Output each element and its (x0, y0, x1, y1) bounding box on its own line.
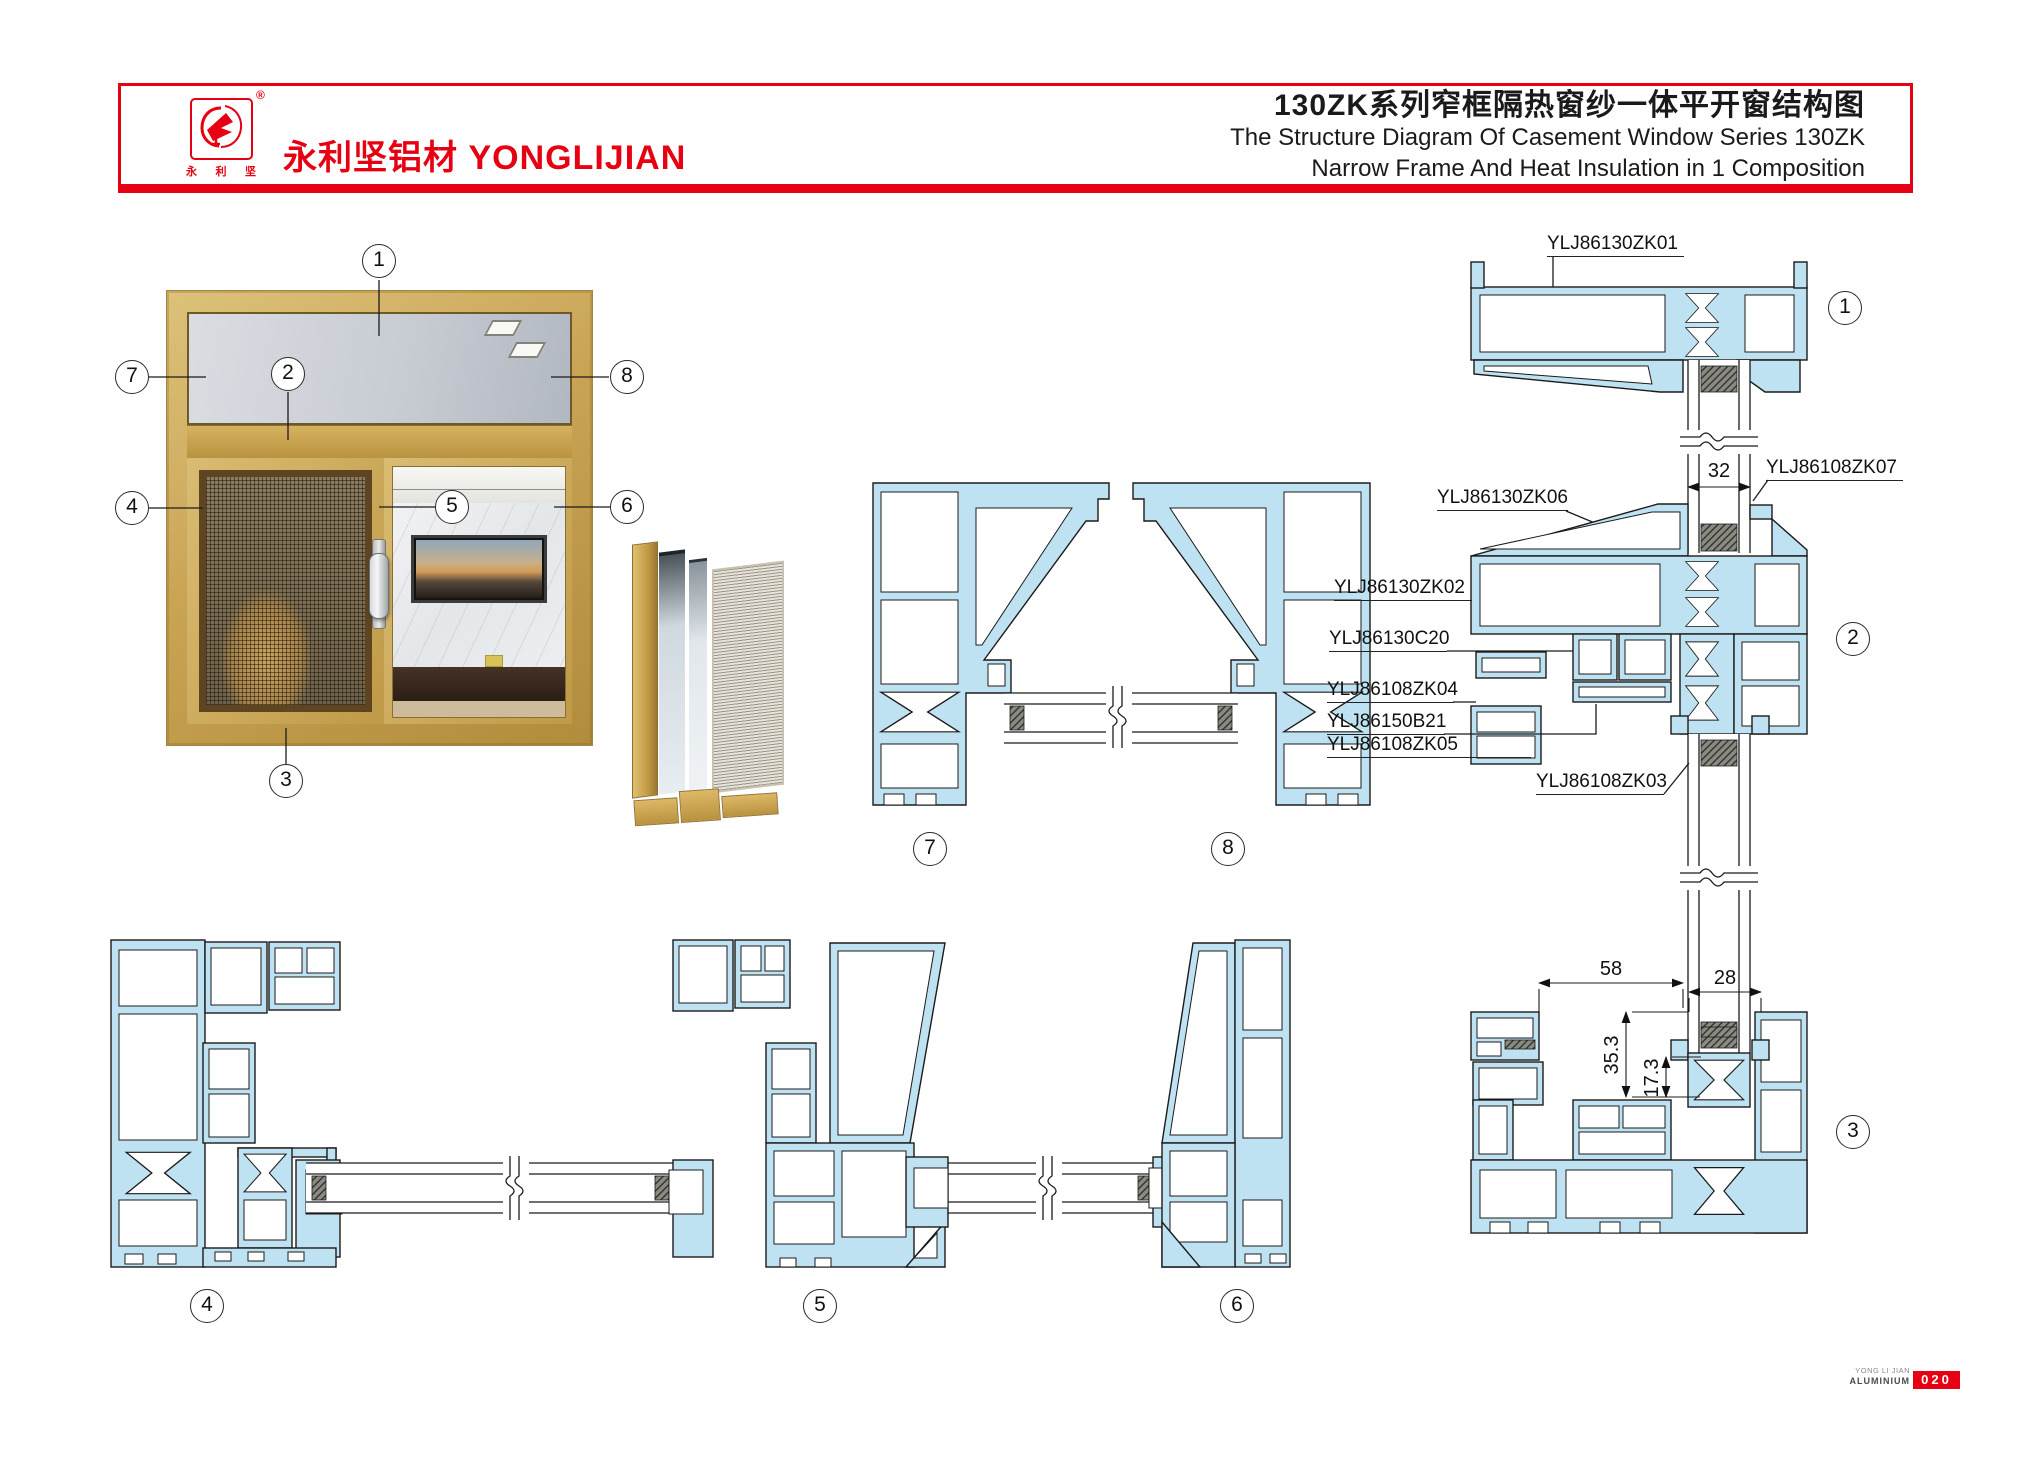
section-4-drawing (111, 940, 342, 1267)
part-label-zk04: YLJ86108ZK04 (1327, 679, 1454, 703)
callout-section-2: 2 (1836, 622, 1870, 656)
callout-section-8: 8 (1211, 832, 1245, 866)
part-label-zk03: YLJ86108ZK03 (1536, 771, 1664, 795)
callout-section-5: 5 (803, 1289, 837, 1323)
part-label-b21: YLJ86150B21 (1327, 711, 1445, 735)
part-label-zk06: YLJ86130ZK06 (1437, 487, 1568, 511)
technical-drawings: 32 (0, 0, 2027, 1457)
section-6-drawing (1149, 940, 1290, 1267)
dim-17-3: 17.3 (1641, 1059, 1663, 1098)
section-7-drawing (873, 483, 1109, 805)
part-label-zk02: YLJ86130ZK02 (1334, 577, 1472, 601)
part-label-zk01: YLJ86130ZK01 (1547, 233, 1684, 257)
callout-window-7: 7 (115, 360, 149, 394)
dim-58: 58 (1600, 958, 1622, 980)
callout-section-7: 7 (913, 832, 947, 866)
callout-window-5: 5 (435, 490, 469, 524)
callout-section-6: 6 (1220, 1289, 1254, 1323)
section-5-drawing (669, 940, 948, 1267)
section-3-drawing: 58 28 35.3 17.3 (1471, 958, 1807, 1233)
catalog-page: ® 永 利 坚 永利坚铝材 YONGLIJIAN 130ZK系列窄框隔热窗纱一体… (0, 0, 2027, 1457)
window-callout-lines (148, 280, 610, 764)
callout-section-4: 4 (190, 1289, 224, 1323)
part-label-zk07: YLJ86108ZK07 (1766, 457, 1903, 481)
glass-between-4-5 (306, 1155, 677, 1221)
dim-28: 28 (1714, 967, 1736, 989)
part-label-c20: YLJ86130C20 (1329, 628, 1447, 652)
callout-window-3: 3 (269, 764, 303, 798)
dim-32: 32 (1708, 460, 1730, 482)
callout-window-2: 2 (271, 357, 305, 391)
callout-window-1: 1 (362, 244, 396, 278)
glass-between-7-8 (1004, 685, 1238, 751)
callout-window-4: 4 (115, 491, 149, 525)
dim-35-3: 35.3 (1601, 1036, 1623, 1075)
callout-section-1: 1 (1828, 291, 1862, 325)
part-label-zk05: YLJ86108ZK05 (1327, 734, 1531, 758)
callout-section-3: 3 (1836, 1115, 1870, 1149)
callout-window-8: 8 (610, 360, 644, 394)
glass-between-5-6 (912, 1155, 1160, 1221)
callout-window-6: 6 (610, 490, 644, 524)
